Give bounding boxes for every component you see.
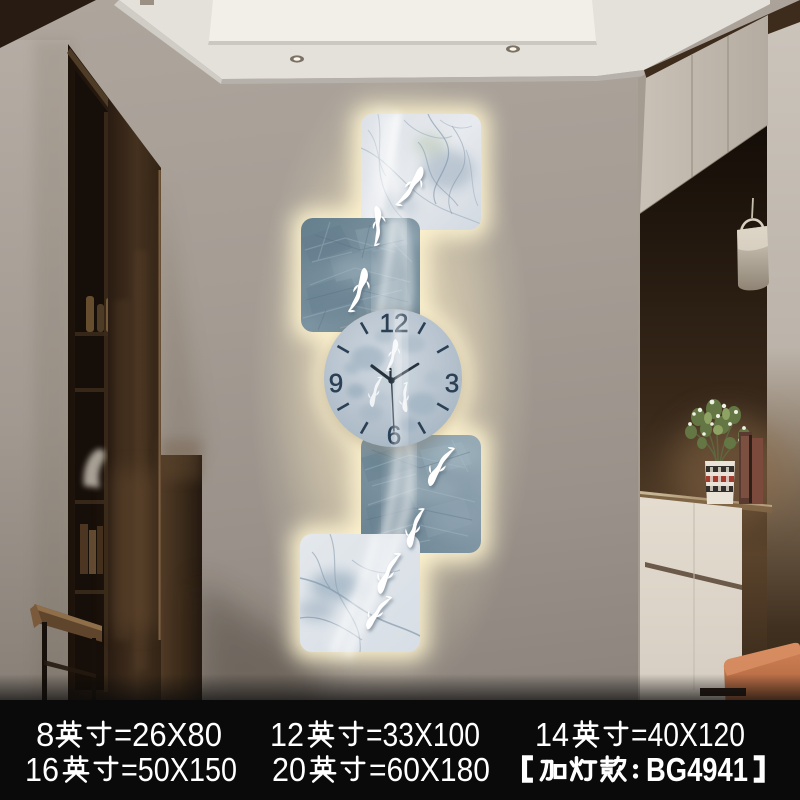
svg-text:9: 9	[329, 368, 343, 398]
svg-text:=26X80: =26X80	[114, 716, 222, 753]
svg-text:8: 8	[36, 716, 54, 753]
svg-text:20: 20	[272, 751, 306, 788]
svg-text:16: 16	[25, 751, 59, 788]
svg-text:3: 3	[445, 368, 459, 398]
svg-text:=50X150: =50X150	[121, 751, 237, 788]
svg-text:=40X120: =40X120	[631, 716, 745, 753]
svg-text:BG4941: BG4941	[646, 751, 748, 788]
svg-text:=33X100: =33X100	[366, 716, 480, 753]
svg-text:=60X180: =60X180	[369, 751, 490, 788]
svg-text:12: 12	[270, 716, 304, 753]
svg-text:14: 14	[535, 716, 569, 753]
